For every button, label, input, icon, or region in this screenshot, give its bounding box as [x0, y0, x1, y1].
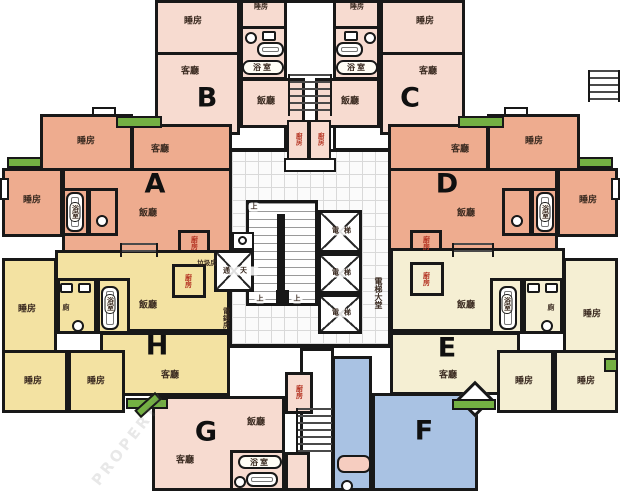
unit-a-letter: A — [145, 171, 166, 198]
window-bay — [611, 178, 620, 200]
unit-a-living-label: 客廳 — [151, 146, 169, 155]
unit-g-toilet — [234, 476, 246, 488]
unit-e-bedroom-label: 睡房 — [583, 311, 601, 320]
unit-c-bedroom-label: 睡房 — [416, 18, 434, 27]
unit-e-dining-label: 飯廳 — [457, 302, 475, 311]
unit-d-bedroom-label: 睡房 — [525, 138, 543, 147]
unit-c-wall — [382, 52, 463, 55]
unit-f-toilet — [341, 480, 353, 491]
unit-a-kitchen-label: 廚房 — [191, 236, 198, 250]
unit-c-letter: C — [400, 85, 420, 112]
unit-c-bath-label-box: 浴室 — [336, 60, 378, 75]
stair-up-label: 上 — [292, 295, 303, 304]
unit-a-balcony — [116, 116, 162, 128]
unit-c-dining-label: 飯廳 — [341, 98, 359, 107]
unit-h-bedroom2-label: 睡房 — [87, 378, 105, 387]
unit-g-bathtub — [246, 472, 278, 487]
unit-a-dining-label: 飯廳 — [139, 210, 157, 219]
unit-a-bath-label: 浴室 — [70, 202, 81, 222]
unit-d-toilet-room — [502, 188, 532, 236]
unit-c-living-label: 客廳 — [419, 68, 437, 77]
unit-d-balcony — [458, 116, 504, 128]
unit-b-kitchen-label: 廚房 — [295, 133, 302, 146]
unit-h-service-stairs — [120, 243, 158, 257]
window-bay — [92, 107, 116, 116]
unit-h-bath-label: 浴室 — [105, 294, 116, 314]
unit-b-bath-label-box: 浴室 — [242, 60, 284, 75]
unit-e-balcony — [604, 358, 618, 372]
unit-h-toilet-label: 廁 — [63, 305, 70, 312]
unit-d-bedroom2-label: 睡房 — [579, 197, 597, 206]
unit-e-kitchen-label: 廚房 — [423, 272, 430, 286]
unit-e-bedroom2-label: 睡房 — [515, 378, 533, 387]
unit-e-sink — [527, 283, 540, 293]
unit-b-bedroom2-label: 睡房 — [254, 4, 268, 11]
service-sinks — [284, 158, 336, 172]
stair-landing-block — [276, 290, 289, 303]
unit-e-balcony — [452, 399, 496, 410]
unit-b-wall — [157, 52, 238, 55]
unit-c-wall — [335, 26, 378, 29]
unit-g-bath-label: 浴室 — [250, 457, 270, 468]
unit-e-toilet — [541, 320, 553, 332]
unit-d-toilet — [511, 215, 523, 227]
edge-stairs — [588, 70, 620, 102]
unit-f-bathtub — [337, 455, 371, 473]
unit-h-sink — [60, 283, 73, 293]
unit-g-ext — [285, 452, 310, 491]
window-bay — [504, 107, 528, 116]
unit-a-bedroom-label: 睡房 — [77, 138, 95, 147]
unit-c-bathtub — [336, 42, 363, 57]
unit-h-living-label: 客廳 — [161, 372, 179, 381]
unit-a-bedroom2-label: 睡房 — [23, 197, 41, 206]
unit-h-bedroom-label: 睡房 — [18, 306, 36, 315]
floor-plan: 上 上 上 通天 電梯 電梯 電梯 電錶房 電梯大堂 垃圾房 廚房 廚房 睡房 … — [0, 0, 620, 491]
unit-h-dining-label: 飯廳 — [139, 302, 157, 311]
stair-divider — [277, 214, 285, 296]
stair-up-label: 上 — [255, 295, 266, 304]
unit-b-living-label: 客廳 — [181, 68, 199, 77]
lightwell-label: 通天 — [221, 267, 259, 276]
unit-d-dining-label: 飯廳 — [457, 210, 475, 219]
elevator-label: 電梯 — [330, 269, 358, 278]
unit-a-balcony — [7, 157, 42, 168]
unit-g-dining-label: 飯廳 — [247, 419, 265, 428]
unit-h-toilet — [72, 320, 84, 332]
unit-f-letter: F — [415, 418, 433, 445]
unit-d-bath-label: 浴室 — [540, 202, 551, 222]
unit-c-bath-label: 浴室 — [347, 62, 367, 73]
unit-e-living-label: 客廳 — [439, 372, 457, 381]
unit-b-bath-label: 浴室 — [253, 62, 273, 73]
unit-a-toilet — [96, 215, 108, 227]
unit-b-dining-label: 飯廳 — [257, 98, 275, 107]
meter-room-label: 電錶房 — [223, 308, 230, 329]
bottom-stairs — [296, 408, 334, 454]
unit-c-kitchen-label: 廚房 — [317, 133, 324, 146]
stair-up-label: 上 — [249, 203, 260, 212]
top-stairs — [288, 74, 332, 116]
unit-h-letter: H — [146, 333, 169, 360]
unit-b-bathtub — [257, 42, 284, 57]
unit-a-toilet-room — [88, 188, 118, 236]
unit-d-living-upper — [388, 124, 489, 171]
unit-d-letter: D — [436, 171, 458, 198]
unit-b-wall — [242, 26, 285, 29]
unit-c-sink — [344, 31, 358, 41]
unit-h-sink — [78, 283, 91, 293]
unit-e-bath-label: 浴室 — [502, 294, 513, 314]
unit-h-bedroom3-label: 睡房 — [24, 378, 42, 387]
elevator-label: 電梯 — [330, 227, 358, 236]
unit-b-letter: B — [197, 85, 218, 112]
unit-d-living-label: 客廳 — [451, 146, 469, 155]
unit-d-balcony — [578, 157, 613, 168]
elevator-label: 電梯 — [330, 309, 358, 318]
unit-c-bedroom2-label: 睡房 — [350, 4, 364, 11]
unit-g-kitchen-label: 廚房 — [296, 385, 303, 399]
refuse-room-label: 垃圾房 — [197, 260, 217, 267]
window-bay — [0, 178, 9, 200]
cleaners-sink — [238, 236, 247, 245]
elevator-lobby-label: 電梯大堂 — [374, 277, 382, 309]
unit-g-letter: G — [195, 419, 217, 446]
unit-h-kitchen-label: 廚房 — [185, 274, 192, 288]
unit-e-sink — [545, 283, 558, 293]
unit-b-bedroom-label: 睡房 — [184, 18, 202, 27]
unit-e-bedroom3-label: 睡房 — [577, 378, 595, 387]
unit-d-kitchen-label: 廚房 — [423, 236, 430, 250]
unit-e-bed-right — [563, 258, 618, 356]
unit-e-letter: E — [438, 335, 456, 362]
unit-c-toilet — [364, 32, 376, 44]
unit-g-living-label: 客廳 — [176, 457, 194, 466]
unit-e-service-stairs — [452, 243, 494, 257]
unit-b-toilet — [245, 32, 257, 44]
unit-b-sink — [262, 31, 276, 41]
unit-a-living-upper — [131, 124, 232, 171]
unit-e-toilet-label: 廁 — [548, 305, 555, 312]
unit-g-bath-label-box: 浴室 — [238, 455, 282, 469]
